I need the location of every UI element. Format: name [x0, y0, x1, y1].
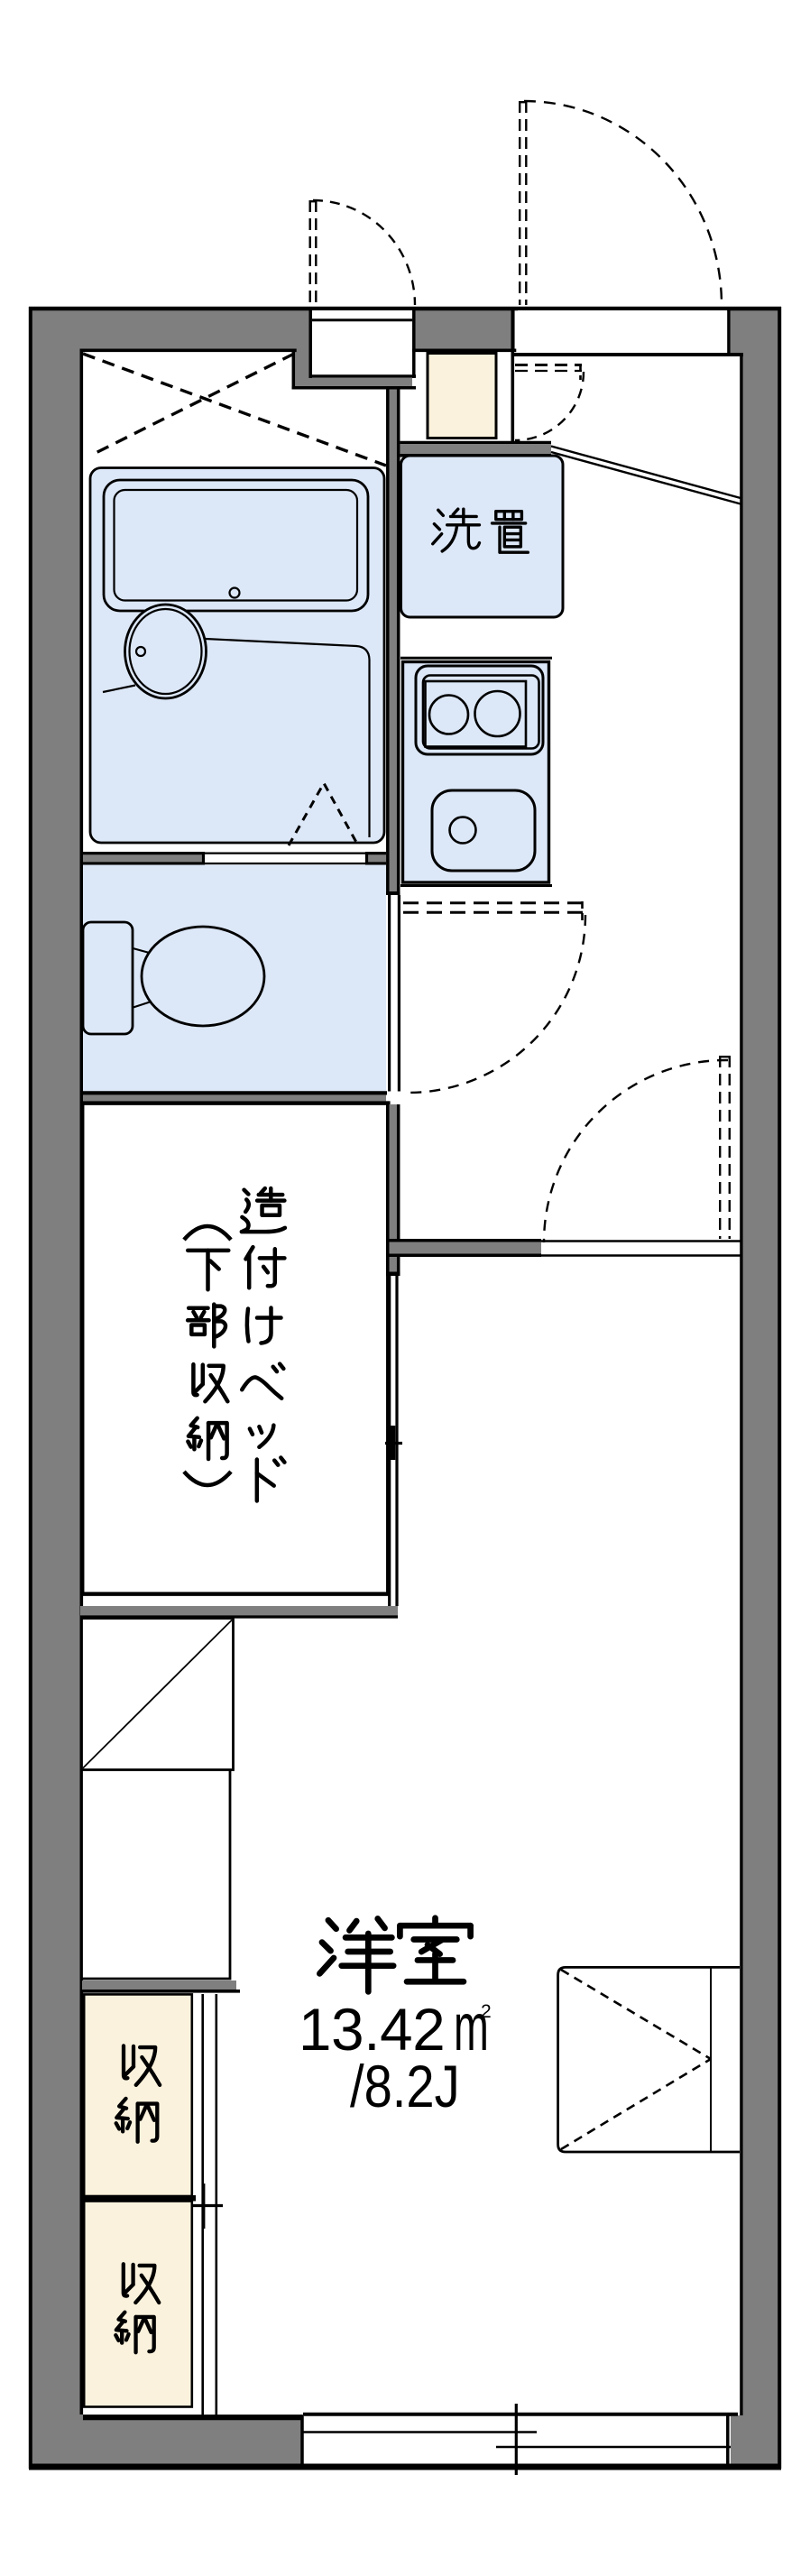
- svg-text:/8.2J: /8.2J: [350, 2054, 460, 2119]
- svg-text:2: 2: [481, 2001, 492, 2022]
